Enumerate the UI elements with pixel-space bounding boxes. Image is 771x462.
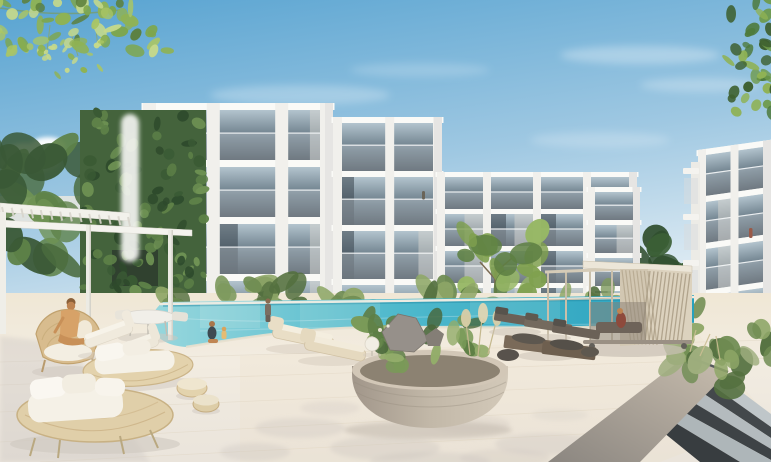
architectural-render-scene: Residential complex exterior render 3D a… xyxy=(0,0,771,462)
side-table xyxy=(365,337,379,351)
pergola-post xyxy=(0,212,6,334)
standing-person xyxy=(265,298,271,322)
planter-soil xyxy=(360,355,500,387)
child xyxy=(222,327,227,339)
cabana-person-body xyxy=(616,312,626,328)
cabana-person-head xyxy=(617,308,623,314)
balcony-person-right xyxy=(749,228,753,238)
floor-pouf xyxy=(497,349,519,361)
blurred-white-column xyxy=(121,114,139,262)
cabana-base xyxy=(583,340,692,344)
balcony-person-middle xyxy=(422,191,425,200)
dining-chair xyxy=(172,311,189,322)
render-canvas: Residential complex exterior render 3D a… xyxy=(0,0,771,462)
floor-pouf xyxy=(581,347,599,357)
